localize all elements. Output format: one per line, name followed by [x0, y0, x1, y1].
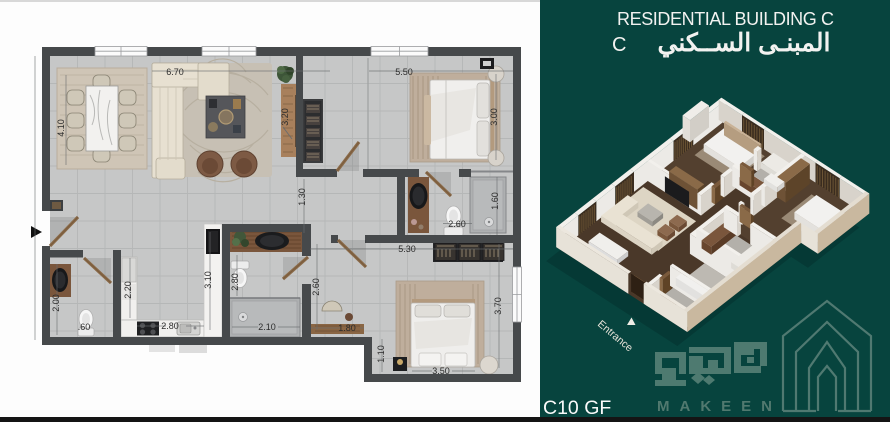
svg-text:المبنـى الســكني: المبنـى الســكني: [658, 29, 831, 58]
svg-text:1.10: 1.10: [376, 345, 386, 363]
svg-text:2.20: 2.20: [123, 281, 133, 299]
svg-text:3.70: 3.70: [493, 297, 503, 315]
svg-text:RESIDENTIAL BUILDING C: RESIDENTIAL BUILDING C: [617, 9, 834, 29]
svg-text:6.70: 6.70: [166, 67, 184, 77]
svg-text:3.50: 3.50: [432, 366, 450, 376]
svg-text:4.10: 4.10: [56, 119, 66, 137]
svg-text:3.00: 3.00: [489, 108, 499, 126]
svg-text:2.10: 2.10: [258, 322, 276, 332]
svg-text:1.30: 1.30: [297, 188, 307, 206]
svg-text:2.00: 2.00: [51, 294, 61, 312]
svg-text:5.50: 5.50: [395, 67, 413, 77]
svg-text:1.80: 1.80: [338, 323, 356, 333]
svg-text:3.10: 3.10: [203, 271, 213, 289]
svg-text:1.60: 1.60: [490, 192, 500, 210]
svg-text:2.60: 2.60: [448, 219, 466, 229]
svg-text:C: C: [612, 34, 626, 56]
svg-text:2.80: 2.80: [161, 321, 179, 331]
svg-text:.60: .60: [78, 322, 91, 332]
svg-text:C10 GF: C10 GF: [543, 397, 611, 419]
svg-text:5.30: 5.30: [398, 244, 416, 254]
svg-text:3.20: 3.20: [280, 108, 290, 126]
svg-text:2.80: 2.80: [230, 273, 240, 291]
svg-text:2.60: 2.60: [311, 278, 321, 296]
svg-text:MAKEEN: MAKEEN: [657, 398, 782, 415]
